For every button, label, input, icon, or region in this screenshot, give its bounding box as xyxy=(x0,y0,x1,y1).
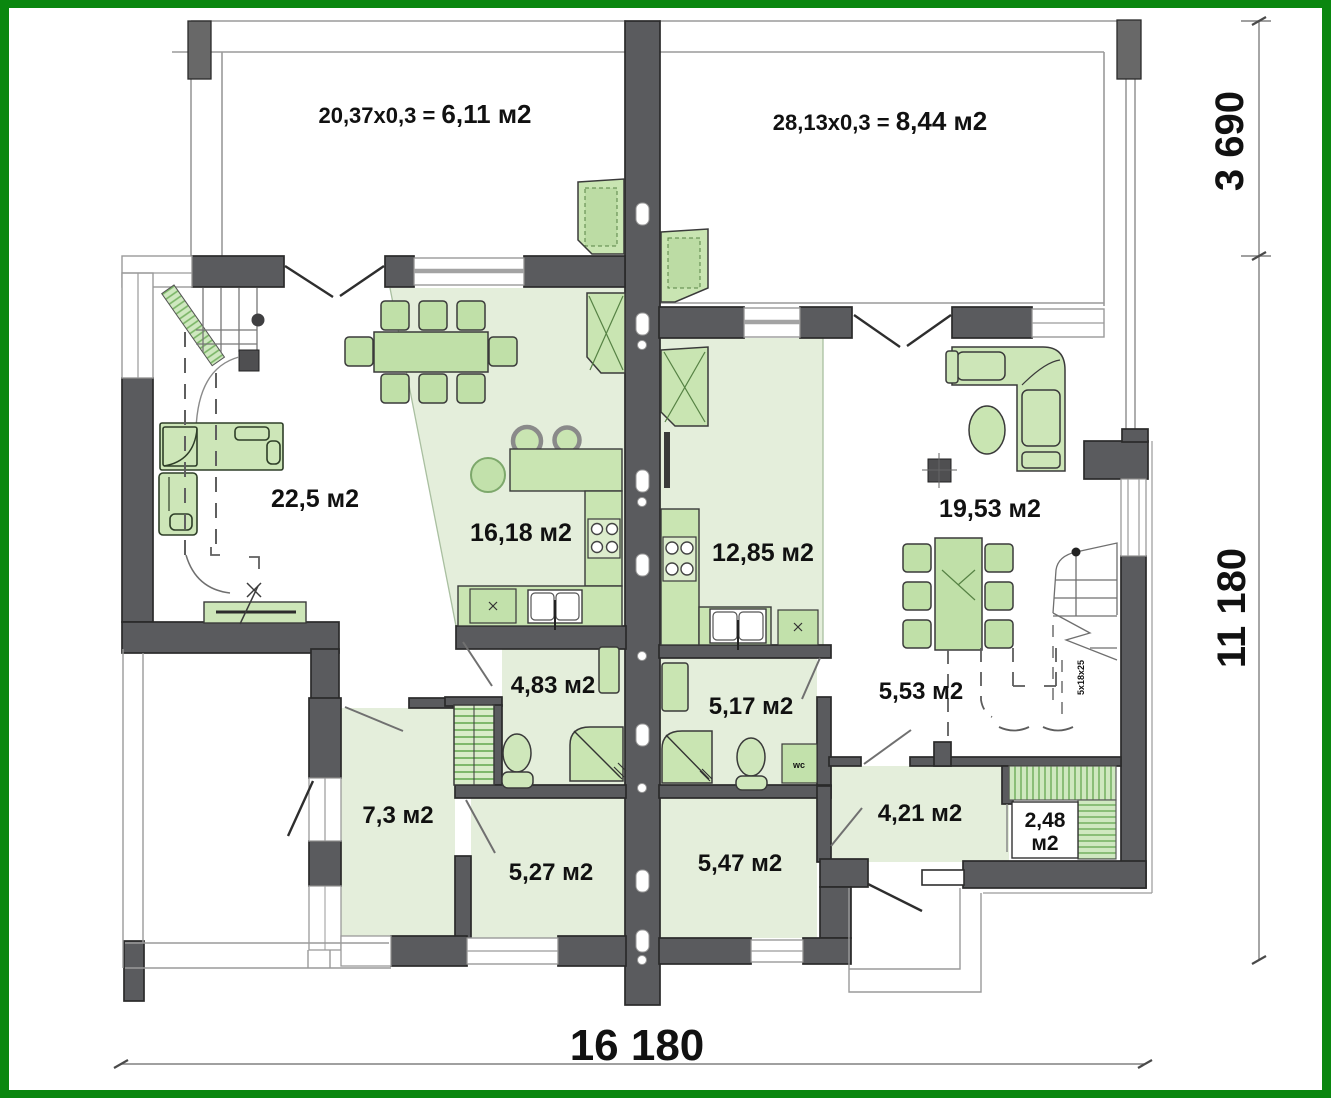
svg-text:2,48: 2,48 xyxy=(1025,809,1066,832)
svg-text:5,27 м2: 5,27 м2 xyxy=(509,859,593,886)
svg-text:5,47 м2: 5,47 м2 xyxy=(698,850,782,877)
svg-text:28,13x0,3 = 8,44 м2: 28,13x0,3 = 8,44 м2 xyxy=(773,106,987,136)
svg-text:4,21 м2: 4,21 м2 xyxy=(878,800,962,827)
svg-text:7,3 м2: 7,3 м2 xyxy=(362,802,433,829)
svg-text:5,17 м2: 5,17 м2 xyxy=(709,693,793,720)
svg-text:3 690: 3 690 xyxy=(1208,91,1252,191)
svg-text:16,18 м2: 16,18 м2 xyxy=(470,519,572,547)
svg-text:wc: wc xyxy=(792,760,805,770)
svg-text:4,83 м2: 4,83 м2 xyxy=(511,672,595,699)
svg-text:16 180: 16 180 xyxy=(570,1021,705,1070)
svg-text:5x18x25: 5x18x25 xyxy=(1076,660,1086,695)
svg-text:19,53 м2: 19,53 м2 xyxy=(939,495,1041,523)
svg-text:5,53 м2: 5,53 м2 xyxy=(879,678,963,705)
svg-text:12,85 м2: 12,85 м2 xyxy=(712,539,814,567)
svg-text:20,37x0,3 = 6,11 м2: 20,37x0,3 = 6,11 м2 xyxy=(318,99,531,129)
svg-text:11 180: 11 180 xyxy=(1210,548,1254,668)
svg-text:м2: м2 xyxy=(1031,832,1058,855)
svg-text:22,5 м2: 22,5 м2 xyxy=(271,485,359,513)
